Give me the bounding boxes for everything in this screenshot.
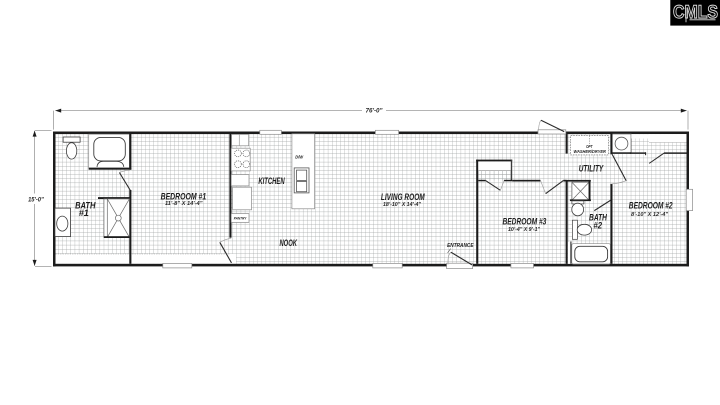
svg-text:18'-10" X 14'-4": 18'-10" X 14'-4"	[383, 202, 421, 208]
svg-text:#1: #1	[79, 208, 89, 219]
svg-text:ENTRANCE: ENTRANCE	[447, 243, 474, 249]
svg-text:76'-0": 76'-0"	[366, 108, 383, 115]
svg-text:11'-8" X 14'-4": 11'-8" X 14'-4"	[165, 201, 203, 207]
svg-text:KITCHEN: KITCHEN	[258, 175, 284, 186]
svg-text:#2: #2	[593, 221, 602, 232]
svg-text:15'-0": 15'-0"	[28, 196, 44, 203]
svg-text:LIVING ROOM: LIVING ROOM	[381, 191, 425, 202]
svg-text:UTILITY: UTILITY	[579, 164, 604, 174]
svg-text:CMLS: CMLS	[673, 1, 718, 22]
svg-text:8'-10" X 12'-4": 8'-10" X 12'-4"	[631, 212, 668, 218]
svg-text:PANTRY: PANTRY	[234, 216, 247, 221]
svg-text:BEDROOM #1: BEDROOM #1	[161, 190, 207, 201]
svg-text:10'-4" X 9'-1": 10'-4" X 9'-1"	[508, 227, 540, 233]
svg-text:BEDROOM #2: BEDROOM #2	[629, 200, 673, 211]
svg-text:BEDROOM #3: BEDROOM #3	[502, 215, 546, 226]
svg-text:NOOK: NOOK	[279, 237, 297, 248]
svg-text:WASHER/DRYER: WASHER/DRYER	[573, 149, 606, 154]
svg-text:D/W: D/W	[295, 155, 304, 160]
